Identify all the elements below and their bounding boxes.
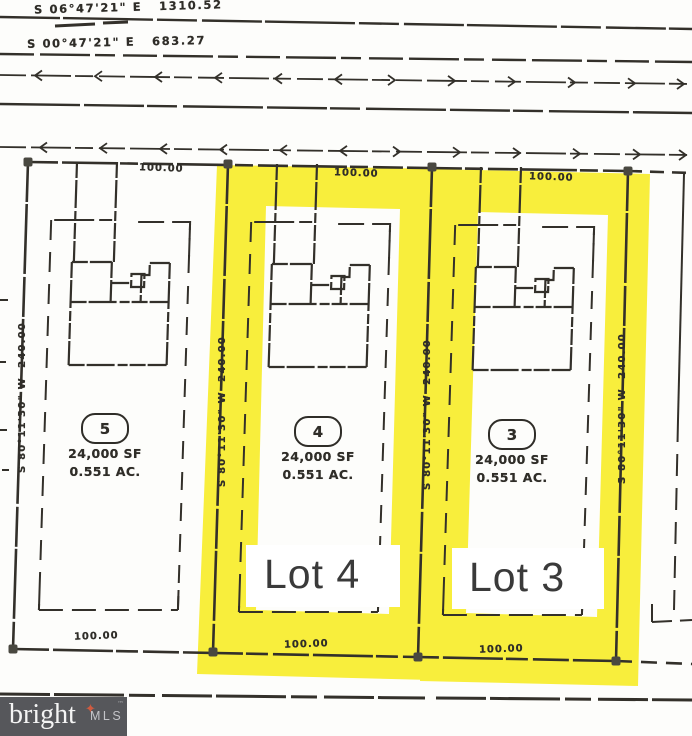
lot3-number: 3 — [507, 426, 517, 444]
lot3-area-ac: 0.551 AC. — [476, 470, 547, 486]
brightmls-brand-text: bright — [9, 699, 76, 731]
lot5-plan — [39, 162, 192, 610]
side-bearing-lot3-right: S 80°11'30" W 240.00 — [617, 333, 628, 484]
lot5-area-ac: 0.551 AC. — [69, 464, 140, 480]
lot4-number: 4 — [313, 423, 323, 441]
lot4-label: 4 24,000 SF 0.551 AC. — [263, 416, 373, 482]
frontage-dim-bottom-lot5: 100.00 — [74, 630, 119, 643]
frontage-dim-top-lot3: 100.00 — [529, 171, 574, 184]
lot4-number-badge: 4 — [294, 416, 342, 447]
lot3-label: 3 24,000 SF 0.551 AC. — [457, 419, 567, 485]
side-bearing-lot4-lot3: S 80°11'30" W 240.00 — [422, 339, 433, 490]
lot3-number-badge: 3 — [488, 419, 536, 450]
lot3-area-sf: 24,000 SF — [475, 452, 549, 468]
brightmls-watermark: bright ✦ ™ MLS — [0, 697, 127, 736]
lot5-number-badge: 5 — [81, 413, 129, 444]
lot5-label: 5 24,000 SF 0.551 AC. — [50, 413, 160, 479]
lot4-highlight-label: Lot 4 — [264, 551, 360, 598]
frontage-dim-top-lot4: 100.00 — [334, 167, 379, 180]
frontage-dim-top-lot5: 100.00 — [139, 162, 184, 175]
brightmls-mls-text: MLS — [90, 709, 123, 723]
frontage-dim-bottom-lot3: 100.00 — [479, 643, 524, 656]
lot4-area-sf: 24,000 SF — [281, 449, 355, 465]
plat-line-drawing — [0, 0, 692, 736]
side-bearing-lot5-lot4: S 80°11'30" W 240.00 — [217, 336, 228, 487]
lot5-number: 5 — [100, 420, 110, 438]
frontage-dim-bottom-lot4: 100.00 — [284, 638, 329, 651]
side-bearing-lot5-left: S 80°11'30" W 240.00 — [17, 322, 28, 473]
lot5-area-sf: 24,000 SF — [68, 446, 142, 462]
lot3-highlight-label: Lot 3 — [469, 554, 565, 601]
plat-map: S 06°47'21" E 1310.52 S 00°47'21" E 683.… — [0, 0, 692, 736]
trademark-symbol: ™ — [117, 700, 124, 708]
lot4-area-ac: 0.551 AC. — [282, 467, 353, 483]
